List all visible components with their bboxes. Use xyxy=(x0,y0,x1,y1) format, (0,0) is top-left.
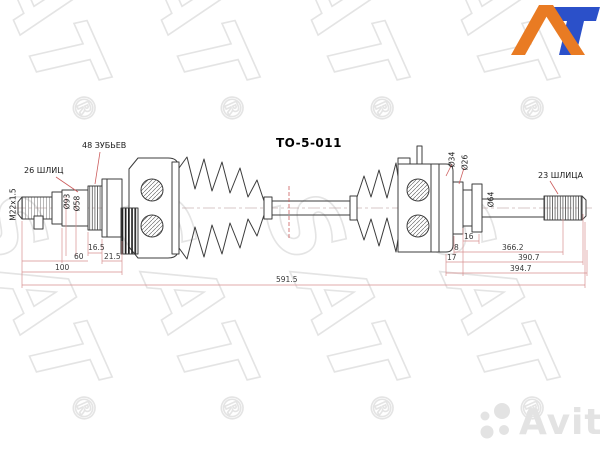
dim-overall-len: 591.5 xyxy=(276,275,297,284)
callout-thread-spec: M22x1.5 xyxy=(9,188,18,222)
avito-logo-mark xyxy=(476,400,516,446)
callout-outer-splines: 26 ШЛИЦ xyxy=(24,166,64,175)
axle-drawing xyxy=(0,0,600,450)
dim-outer-step-len: 21.5 xyxy=(104,252,121,261)
dim-outer-joint-len: 60 xyxy=(74,252,84,261)
callout-dia-inner-joint: Ø64 xyxy=(487,190,496,210)
callout-dia-boot-seat: Ø58 xyxy=(73,194,82,214)
dim-inner-stub-len: 17 xyxy=(447,253,457,262)
dim-inner-groove-len: 8 xyxy=(454,243,459,252)
callout-dia-shaft: Ø26 xyxy=(461,153,470,173)
avito-wordmark: Avito xyxy=(519,400,600,446)
callout-abs-teeth: 48 ЗУБЬЕВ xyxy=(82,141,126,150)
callout-dia-ring: Ø34 xyxy=(448,150,457,170)
dim-outer-assembly-len: 100 xyxy=(55,263,69,272)
dim-inner-spline-len: 16 xyxy=(464,232,474,241)
part-number: TO-5-011 xyxy=(276,136,342,150)
callout-dia-outer-joint: Ø93 xyxy=(63,192,72,212)
dim-inner-len-1: 390.7 xyxy=(518,253,539,262)
screenshot-root: SAT® SAT® SAT® SAT® SAT® SAT® SAT® SAT® xyxy=(0,0,600,450)
dim-inner-len-2: 394.7 xyxy=(510,264,531,273)
dim-outer-spline-len: 16.5 xyxy=(88,243,105,252)
at-logo xyxy=(508,4,600,56)
avito-watermark: Avito xyxy=(476,400,600,446)
dim-shaft-len: 366.2 xyxy=(502,243,523,252)
callout-inner-splines: 23 ШЛИЦА xyxy=(538,171,583,180)
